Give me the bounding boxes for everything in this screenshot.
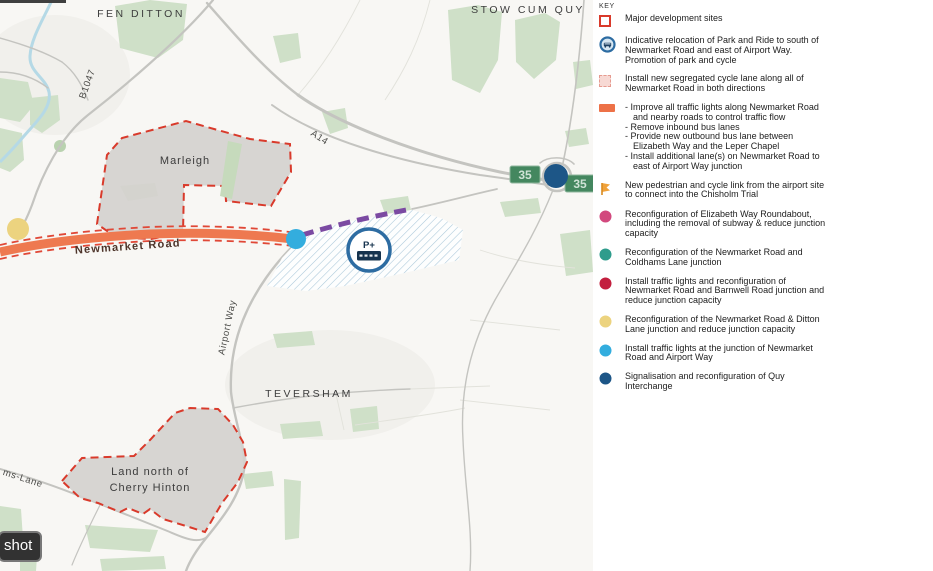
route-sign-35-east: 35 <box>565 175 593 192</box>
major-development-site-icon <box>599 15 611 27</box>
screenshot-stage: 35 35 P+ <box>0 0 933 571</box>
teal-dot-icon <box>599 248 612 261</box>
screenshot-tooltip[interactable]: shot <box>0 531 42 562</box>
legend-item-barnwell-road-junction: Install traffic lights and reconfigurati… <box>599 277 839 306</box>
pink-dot-icon <box>599 210 612 223</box>
legend-label: Install new segregated cycle lane along … <box>625 74 830 94</box>
legend-items: Major development sites Indicative reloc… <box>599 14 839 401</box>
bus-icon <box>604 43 611 46</box>
legend-label: Signalisation and reconfiguration of Quy… <box>625 372 830 392</box>
cycle-lane-icon <box>599 75 611 87</box>
route-sign-35-west-text: 35 <box>518 168 532 182</box>
park-and-ride-map-icon: P+ <box>348 229 390 271</box>
legend-item-ditton-lane-junction: Reconfiguration of the Newmarket Road & … <box>599 315 839 335</box>
browser-edge-artifact <box>0 0 66 3</box>
legend-bullet: - Provide new outbound bus lane between … <box>625 132 830 152</box>
label-teversham: TEVERSHAM <box>265 388 353 400</box>
junction-dot-ditton-lane <box>7 218 29 240</box>
legend-label: Reconfiguration of Elizabeth Way Roundab… <box>625 210 830 239</box>
legend-label: Indicative relocation of Park and Ride t… <box>625 36 830 65</box>
pedestrian-cycle-link-flag-icon <box>599 181 613 196</box>
legend-label: Major development sites <box>625 14 830 27</box>
legend-panel: KEY Major development sites Indicative r… <box>593 0 933 571</box>
legend-item-newmarket-road-measures: - Improve all traffic lights along Newma… <box>599 103 839 172</box>
legend-bullet: - Improve all traffic lights along Newma… <box>625 103 830 123</box>
legend-item-ped-cycle-link: New pedestrian and cycle link from the a… <box>599 181 839 201</box>
legend-label: Reconfiguration of the Newmarket Road an… <box>625 248 830 268</box>
legend-label: New pedestrian and cycle link from the a… <box>625 181 830 201</box>
park-and-ride-symbol-text: P+ <box>363 240 375 251</box>
legend-item-segregated-cycle-lane: Install new segregated cycle lane along … <box>599 74 839 94</box>
legend-item-major-development-sites: Major development sites <box>599 14 839 27</box>
label-land-north-line1: Land north of <box>111 466 189 478</box>
legend-bullet: - Install additional lane(s) on Newmarke… <box>625 152 830 172</box>
label-land-north-line2: Cherry Hinton <box>110 482 191 494</box>
route-sign-35-east-text: 35 <box>573 177 587 191</box>
yellow-dot-icon <box>599 315 612 328</box>
legend-label: Install traffic lights and reconfigurati… <box>625 277 830 306</box>
legend-item-airport-way-junction: Install traffic lights at the junction o… <box>599 344 839 364</box>
junction-dot-quy-interchange <box>544 164 568 188</box>
legend-item-quy-interchange: Signalisation and reconfiguration of Quy… <box>599 372 839 392</box>
route-sign-35-west: 35 <box>510 166 540 183</box>
legend-label: Install traffic lights at the junction o… <box>625 344 830 364</box>
legend-bullet-list: - Improve all traffic lights along Newma… <box>625 103 830 172</box>
junction-dot-airport-way <box>286 229 306 249</box>
legend-item-coldhams-lane-junction: Reconfiguration of the Newmarket Road an… <box>599 248 839 268</box>
legend-item-elizabeth-way-roundabout: Reconfiguration of Elizabeth Way Roundab… <box>599 210 839 239</box>
crimson-dot-icon <box>599 277 612 290</box>
label-fen-ditton: FEN DITTON <box>97 8 185 20</box>
map-canvas[interactable]: 35 35 P+ <box>0 0 593 571</box>
legend-title: KEY <box>599 3 615 10</box>
legend-label: Reconfiguration of the Newmarket Road & … <box>625 315 830 335</box>
lightblue-dot-icon <box>599 344 612 357</box>
darkblue-dot-icon <box>599 372 612 385</box>
park-and-ride-legend-icon <box>599 36 616 53</box>
legend-item-park-ride-relocation: Indicative relocation of Park and Ride t… <box>599 36 839 65</box>
label-stow-cum-quy: STOW CUM QUY <box>471 4 585 16</box>
label-marleigh: Marleigh <box>160 155 210 167</box>
screenshot-tooltip-text: shot <box>4 537 32 554</box>
road-improvement-icon <box>599 104 615 112</box>
